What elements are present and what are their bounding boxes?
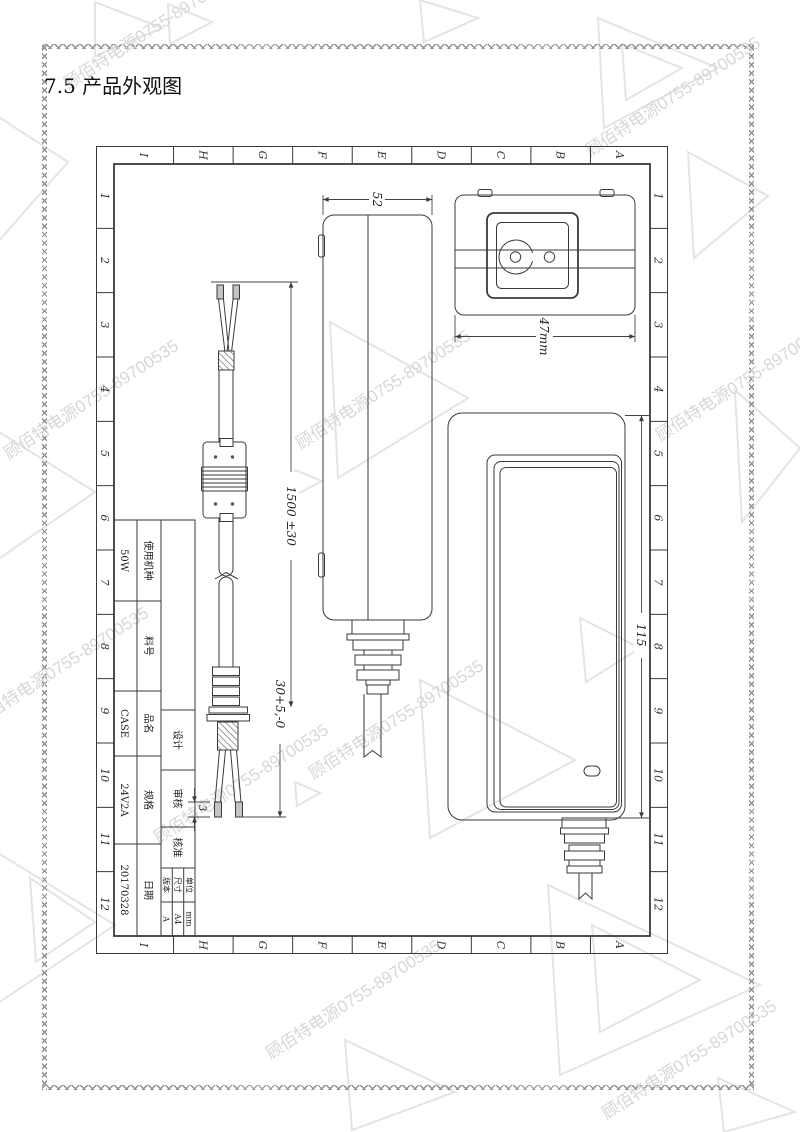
c8-inlet-view: 47mm <box>455 190 635 356</box>
field-label: 规格 <box>142 790 155 810</box>
approval-label: 审核 <box>171 789 184 809</box>
grid-column-label: 5 <box>98 450 111 457</box>
bare-wire-tip <box>236 802 243 817</box>
meta-value: A <box>162 915 171 922</box>
c8-pin-hole <box>544 252 554 262</box>
grid-column-label: 11 <box>98 833 111 847</box>
grid-row-label: C <box>494 941 507 950</box>
grid-row-label: E <box>375 940 388 949</box>
meta-label: 版本 <box>162 877 172 893</box>
meta-label: 尺寸 <box>173 877 183 893</box>
grid-row-label: I <box>137 942 150 948</box>
page-title: 7.5 产品外观图 <box>44 70 182 99</box>
grid-row-label: D <box>435 940 448 950</box>
dimension-115: 115 <box>606 416 649 819</box>
grid-row-label: A <box>613 940 626 949</box>
svg-text:30+5,-0: 30+5,-0 <box>273 680 287 729</box>
grid-column-label: 7 <box>98 579 111 586</box>
zigzag-border-right <box>749 44 754 1090</box>
field-label: 料号 <box>142 636 155 656</box>
zigzag-border-bottom <box>42 1085 754 1090</box>
dimension-tip-length: 3 <box>188 788 210 831</box>
bare-wire-tip <box>215 802 222 817</box>
grid-column-label: 1 <box>652 193 665 200</box>
svg-text:3: 3 <box>196 805 207 811</box>
bare-wire-tip <box>233 285 240 299</box>
zigzag-border-top <box>42 44 754 49</box>
label-recess <box>487 455 622 812</box>
grid-column-label: 9 <box>652 707 665 714</box>
grid-row-label: A <box>613 150 626 159</box>
grid-column-label: 8 <box>98 643 111 650</box>
zigzag-border-left <box>42 44 47 1090</box>
grid-column-label: 3 <box>98 321 111 328</box>
side-view: 52 <box>319 190 433 757</box>
approval-label: 设计 <box>171 730 184 750</box>
cable-exit-bushing <box>347 620 409 757</box>
field-value: CASE <box>118 709 129 738</box>
grid-column-label: 9 <box>98 707 111 714</box>
ferrite-block <box>202 439 248 522</box>
approval-label: 核准 <box>171 838 184 858</box>
c8-socket-outline <box>499 240 532 274</box>
grid-column-label: 10 <box>98 768 111 782</box>
svg-text:52: 52 <box>370 192 384 207</box>
grid-row-label: C <box>494 151 507 160</box>
grid-column-label: 12 <box>98 897 111 911</box>
grid-row-label: G <box>256 151 269 160</box>
grid-column-label: 6 <box>98 514 111 521</box>
grid-row-label: F <box>315 150 328 159</box>
grid-column-label: 10 <box>652 768 665 782</box>
top-view: 115 <box>448 413 649 899</box>
field-label: 使用机种 <box>142 541 155 581</box>
svg-text:1500 ±30: 1500 ±30 <box>284 486 298 546</box>
grid-column-label: 11 <box>652 833 665 847</box>
svg-text:47mm: 47mm <box>537 316 551 355</box>
meta-value: mm <box>185 911 194 927</box>
grid-row-label: B <box>554 940 567 949</box>
c8-pin-hole <box>510 252 520 262</box>
grid-column-label: 5 <box>652 450 665 457</box>
strain-relief <box>207 667 250 721</box>
product-drawing: 112233445566778899101011111212AABBCCDDEE… <box>96 146 668 954</box>
grid-column-label: 7 <box>652 579 665 586</box>
grid-column-label: 2 <box>98 256 111 264</box>
heatshrink-sleeve <box>218 722 239 750</box>
dimension-47mm: 47mm <box>455 315 635 356</box>
svg-text:115: 115 <box>634 624 648 647</box>
field-value: 50W <box>118 549 129 573</box>
meta-label: 单位 <box>185 877 195 893</box>
grid-row-label: H <box>196 939 209 950</box>
drawing-sheet: 112233445566778899101011111212AABBCCDDEE… <box>96 146 668 954</box>
heatshrink-sleeve <box>219 351 235 370</box>
grid-column-label: 4 <box>652 385 665 393</box>
dimension-52: 52 <box>323 190 432 215</box>
title-block: 使用机种 料号 品名 规格 日期 50W CASE 24V2A 20170328… <box>114 520 195 936</box>
output-cable-view: 1500 ±30 30+5,-0 3 <box>188 282 299 831</box>
field-value: 24V2A <box>118 783 129 817</box>
led-indicator <box>584 766 600 776</box>
grid-column-label: 8 <box>652 643 665 650</box>
field-label: 品名 <box>142 714 155 734</box>
grid-column-label: 3 <box>652 321 665 328</box>
field-label: 日期 <box>142 880 154 900</box>
grid-column-label: 1 <box>98 193 111 200</box>
bare-wire-tip <box>217 285 224 299</box>
grid-row-label: B <box>554 150 567 159</box>
grid-row-label: E <box>375 150 388 159</box>
cable-exit-bushing <box>561 818 609 899</box>
meta-value: A4 <box>173 913 182 925</box>
grid-row-label: D <box>435 150 448 160</box>
grid-column-label: 4 <box>98 385 111 393</box>
grid-row-label: F <box>315 940 328 949</box>
grid-row-label: I <box>137 152 150 158</box>
grid-row-label: H <box>196 149 209 160</box>
grid-row-label: G <box>256 941 269 950</box>
field-value: 20170328 <box>118 865 129 916</box>
grid-column-label: 6 <box>652 514 665 521</box>
dimension-strip-length: 30+5,-0 <box>240 664 288 817</box>
grid-column-label: 2 <box>652 256 665 264</box>
grid-column-label: 12 <box>652 897 665 911</box>
